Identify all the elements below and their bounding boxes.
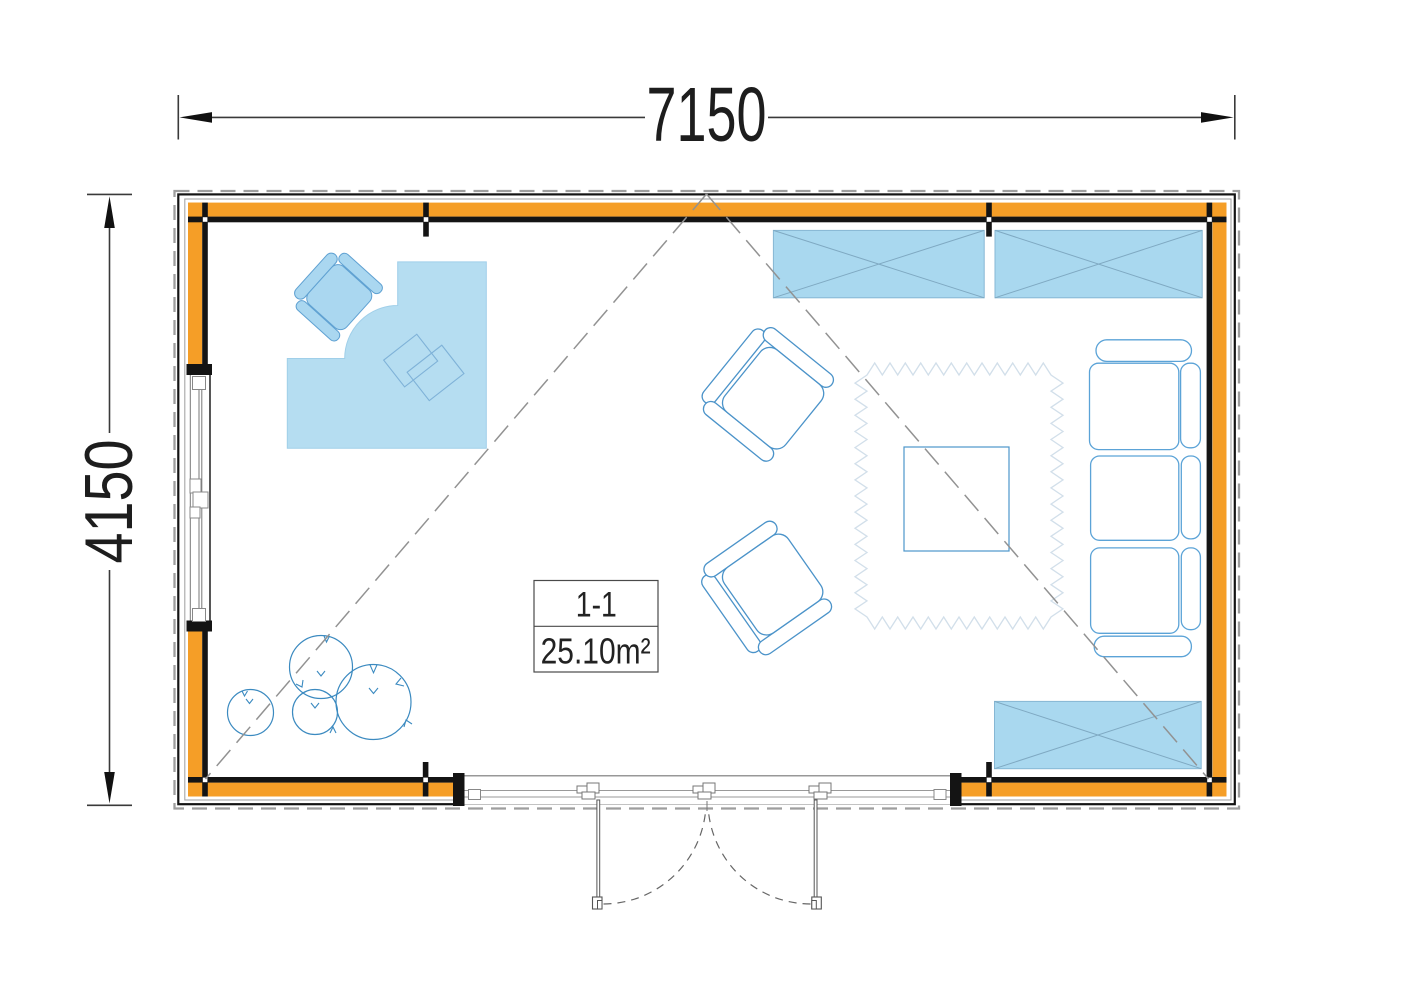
svg-text:25.10m²: 25.10m² [541,631,651,672]
svg-text:4150: 4150 [71,440,147,564]
svg-text:1-1: 1-1 [576,585,617,624]
svg-text:7150: 7150 [647,72,767,158]
